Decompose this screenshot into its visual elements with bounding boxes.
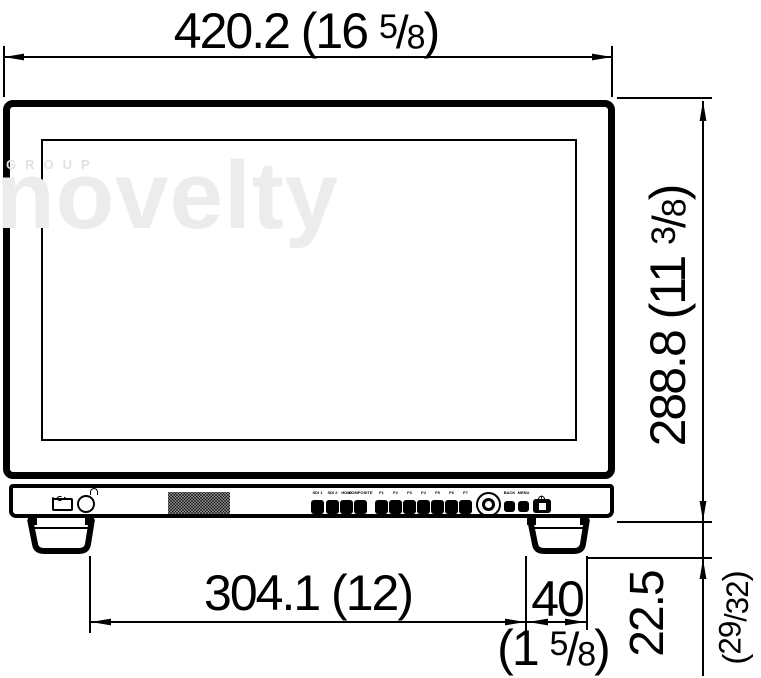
button-label: COMPOSITE bbox=[348, 490, 372, 495]
f1-button bbox=[375, 500, 388, 514]
button-label: F4 bbox=[421, 490, 426, 495]
dimension-width-label: 420.2 (16 5/8) bbox=[174, 6, 438, 56]
control-panel: SDI 1 SDI 2 HDMI COMPOSITE F1 F2 F3 F4 F… bbox=[9, 484, 614, 518]
f2-button bbox=[389, 500, 402, 514]
left-foot bbox=[28, 517, 94, 551]
watermark-novelty-logo: novelty bbox=[0, 148, 339, 244]
button-label: F6 bbox=[449, 490, 454, 495]
button-label: MENU bbox=[518, 490, 530, 495]
dimension-foot-width-inch-label: (1 5/8) bbox=[497, 623, 609, 673]
composite-button bbox=[354, 500, 367, 514]
hdmi-button bbox=[340, 500, 353, 514]
f6-button bbox=[445, 500, 458, 514]
dimension-feet-span-label: 304.1 (12) bbox=[204, 568, 412, 618]
f3-button bbox=[403, 500, 416, 514]
sdi1-button bbox=[311, 500, 324, 514]
power-button bbox=[533, 499, 551, 513]
dimension-foot-width-label: 40 bbox=[531, 574, 583, 624]
button-label: BACK bbox=[504, 490, 516, 495]
sdi2-button bbox=[326, 500, 339, 514]
usb-port bbox=[52, 498, 73, 511]
back-button bbox=[504, 501, 515, 512]
speaker-grille-icon bbox=[168, 492, 230, 515]
dimension-height-label: 288.8 (11 3/8) bbox=[643, 186, 693, 447]
button-label: F5 bbox=[435, 490, 440, 495]
headphone-icon bbox=[90, 488, 98, 495]
button-label: SDI 1 bbox=[312, 490, 322, 495]
monitor-dimension-drawing: SDI 1 SDI 2 HDMI COMPOSITE F1 F2 F3 F4 F… bbox=[0, 0, 761, 678]
dimension-foot-height-label: 22.5 bbox=[624, 571, 672, 656]
dimension-foot-height-inch-label: (29/32) bbox=[715, 571, 754, 664]
f7-button bbox=[459, 500, 472, 514]
f5-button bbox=[431, 500, 444, 514]
headphone-jack bbox=[77, 495, 95, 513]
f4-button bbox=[417, 500, 430, 514]
button-label: F1 bbox=[379, 490, 384, 495]
button-label: F2 bbox=[393, 490, 398, 495]
button-label: F7 bbox=[463, 490, 468, 495]
button-label: F3 bbox=[407, 490, 412, 495]
right-foot bbox=[527, 517, 589, 551]
rotary-knob bbox=[476, 492, 501, 517]
menu-button bbox=[518, 501, 529, 512]
button-label: SDI 2 bbox=[327, 490, 337, 495]
